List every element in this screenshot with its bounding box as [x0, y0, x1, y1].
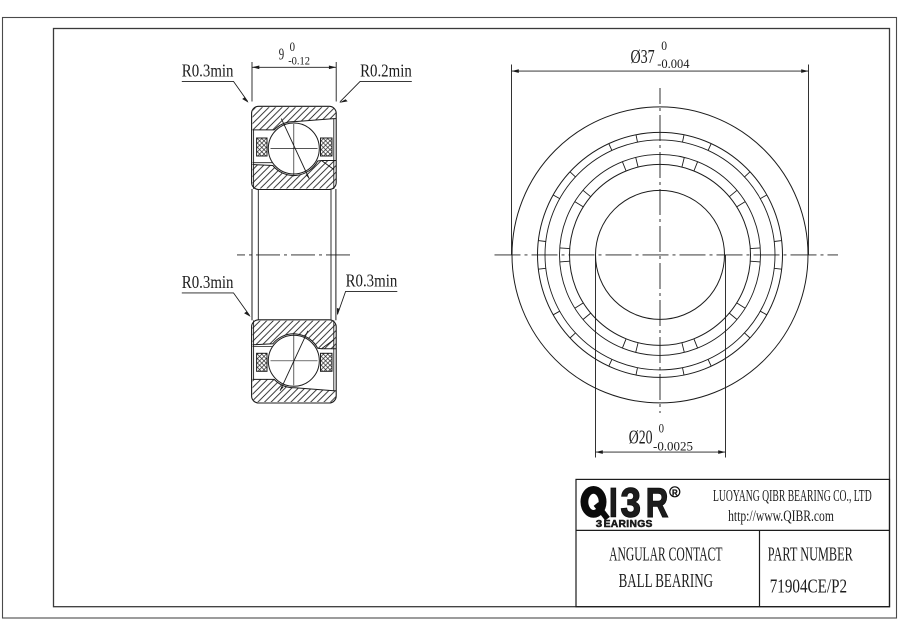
svg-text:R: R: [672, 488, 678, 497]
svg-text:R0.3min: R0.3min: [182, 272, 234, 292]
svg-text:71904CE/P2: 71904CE/P2: [770, 576, 847, 597]
svg-text:9: 9: [279, 45, 284, 64]
svg-text:BALL BEARING: BALL BEARING: [619, 570, 713, 592]
svg-text:R0.2min: R0.2min: [360, 61, 412, 81]
svg-text:0: 0: [659, 420, 664, 435]
svg-text:LUOYANG QIBR BEARING CO., LTD: LUOYANG QIBR BEARING CO., LTD: [713, 486, 872, 505]
svg-text:-0.12: -0.12: [288, 53, 310, 67]
svg-text:3: 3: [596, 519, 603, 530]
svg-text:-0.0025: -0.0025: [653, 439, 693, 454]
svg-text:0: 0: [290, 39, 295, 54]
svg-text:Ø37: Ø37: [631, 46, 655, 68]
svg-text:0: 0: [661, 38, 667, 53]
svg-text:EARINGS: EARINGS: [604, 519, 653, 530]
svg-text:http://www.QIBR.com: http://www.QIBR.com: [728, 508, 834, 525]
svg-text:R0.3min: R0.3min: [182, 61, 234, 81]
svg-text:Ø20: Ø20: [629, 427, 653, 449]
svg-text:ANGULAR CONTACT: ANGULAR CONTACT: [609, 543, 722, 565]
svg-text:PART NUMBER: PART NUMBER: [768, 543, 853, 565]
svg-text:R0.3min: R0.3min: [346, 271, 398, 291]
svg-text:-0.004: -0.004: [657, 56, 690, 71]
